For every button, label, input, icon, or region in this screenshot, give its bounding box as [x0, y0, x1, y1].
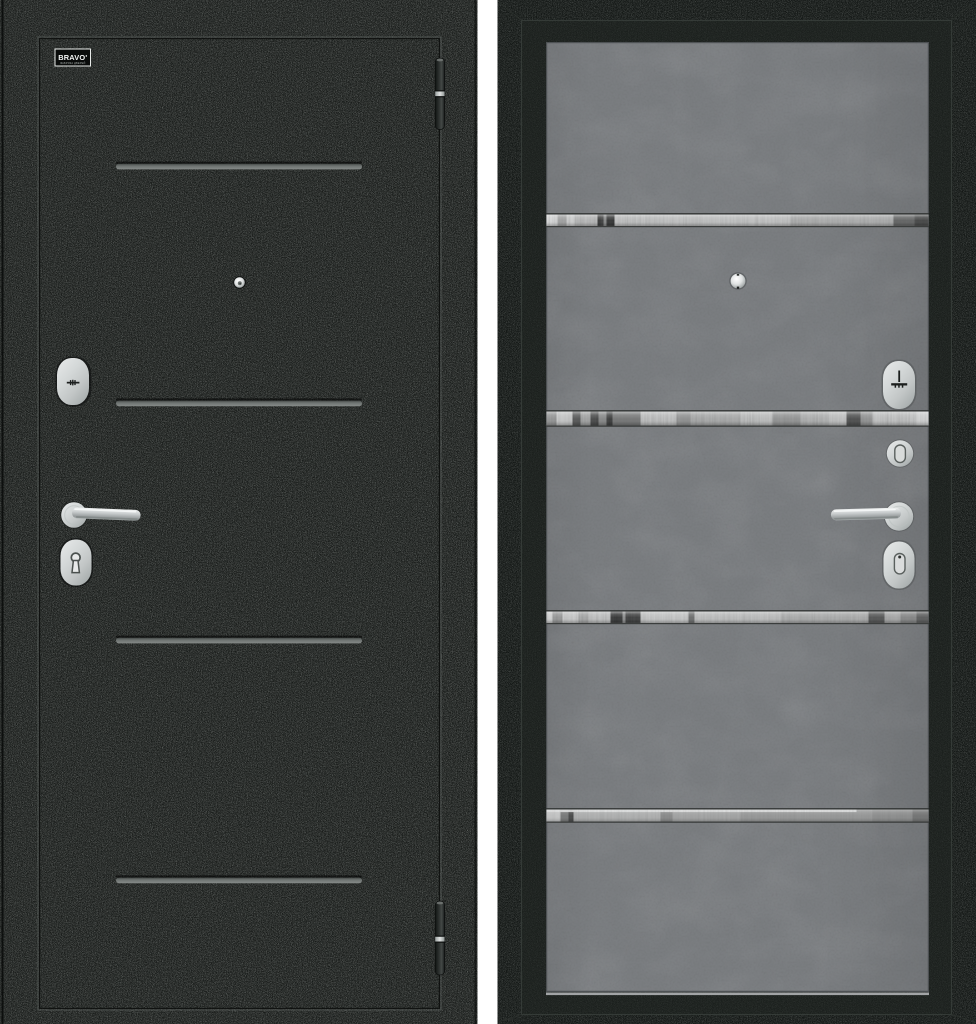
- svg-text:ФАБРИКА ДВЕРЕЙ: ФАБРИКА ДВЕРЕЙ: [60, 62, 85, 65]
- svg-text:BRAVO': BRAVO': [58, 53, 87, 62]
